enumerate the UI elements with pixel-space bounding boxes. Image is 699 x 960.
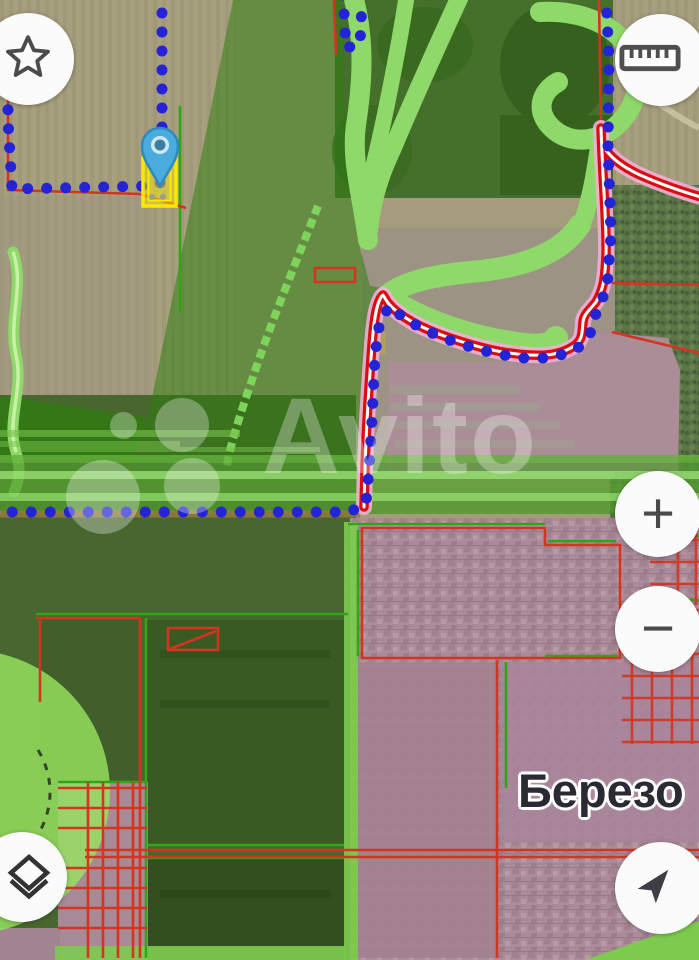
layers-icon [2,848,56,907]
star-icon [1,30,55,89]
ruler-icon [619,42,681,79]
zoom-in-button[interactable]: + [615,471,699,557]
place-label: Березо [518,763,684,818]
map-viewport[interactable]: Avito Березо + − [0,0,699,960]
locate-button[interactable] [615,842,699,934]
navigation-arrow-icon [629,863,675,914]
plus-icon: + [641,485,675,543]
minus-icon: − [641,600,675,658]
measure-button[interactable] [615,14,699,106]
zoom-out-button[interactable]: − [615,586,699,672]
